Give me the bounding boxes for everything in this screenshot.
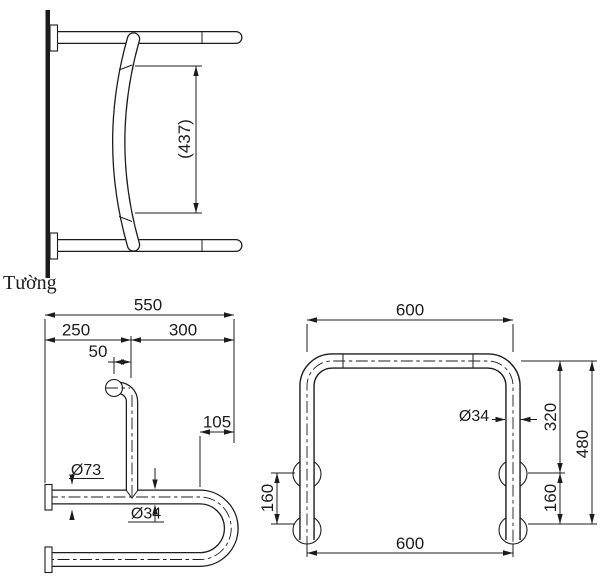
technical-drawing-page: { "colors": { "line": "#1c1c1c", "backgr… [0,0,606,588]
dim-label-160-left: 160 [258,484,277,512]
frame-tube-outline [307,361,513,540]
frame-tube-body [307,361,513,540]
dim-arrow [69,510,74,520]
wall-label: Tường [3,272,57,294]
curved-tube-body [119,39,134,245]
dim-arrow [193,203,198,213]
dimension-600-bottom: 600 [307,534,513,556]
dim-label-300: 300 [169,321,197,340]
wall-flange-bottom [50,233,58,259]
dim-label-480: 480 [573,430,592,458]
dim-arrow [557,463,562,473]
frame-tube-centerline [307,361,513,548]
dim-arrow [503,550,513,555]
dim-arrow [557,473,562,483]
dim-label-600-top: 600 [396,301,424,320]
dim-arrow [307,317,317,322]
dimension-160-right: 160 [541,473,563,524]
callout-dia-34-front: Ø34 [459,408,537,425]
dimension-320: 320 [541,361,563,473]
dim-label-105: 105 [203,413,231,432]
dim-arrow [131,337,141,342]
dim-arrow [589,514,594,524]
wall-line [46,10,51,278]
dim-arrow [121,337,131,342]
dim-label-437: (437) [175,119,194,159]
dim-arrow [45,337,55,342]
dimension-105: 105 [200,413,234,435]
dim-arrow [503,317,513,322]
dim-arrow [193,66,198,76]
dim-label-250: 250 [62,321,90,340]
dim-arrow [521,417,531,422]
dim-arrow [45,312,55,317]
dimension-437: (437) [135,66,202,213]
dimension-550: 550 [45,296,234,318]
dia-label-34-front: Ø34 [459,408,489,425]
wall-flange-top [50,25,58,51]
dim-arrow [274,473,279,483]
dim-label-320: 320 [541,403,560,431]
dim-arrow [121,359,131,364]
dim-arrow [557,361,562,371]
dimension-50: 50 [89,342,131,365]
dia-label-73: Ø73 [71,462,101,479]
front-view: 600 600 Ø34 320 480 [258,301,597,558]
dim-label-550: 550 [134,296,162,315]
dim-arrow [307,550,317,555]
dia-label-34-plan: Ø34 [131,506,161,523]
dim-arrow [496,417,506,422]
plan-flange-top [45,485,52,511]
dim-arrow [152,480,157,490]
dim-label-50: 50 [89,342,108,361]
dimension-160-left: 160 [258,473,280,524]
dim-label-160-right: 160 [541,484,560,512]
plan-view: 550 250 300 50 105 [45,296,234,573]
dimension-480: 480 [573,361,595,524]
dim-arrow [274,514,279,524]
dimension-250-300: 250 300 [45,321,234,343]
grab-bar-drawing: (437) Tường 550 [0,0,606,588]
dim-arrow [224,312,234,317]
dimension-600-top: 600 [307,301,513,323]
dim-label-600-bottom: 600 [396,534,424,553]
dim-arrow [224,337,234,342]
drop-tube-body [119,388,133,496]
side-view: (437) Tường [3,10,236,294]
dim-arrow [557,514,562,524]
plan-flange-bottom [45,547,52,573]
dim-arrow [589,361,594,371]
